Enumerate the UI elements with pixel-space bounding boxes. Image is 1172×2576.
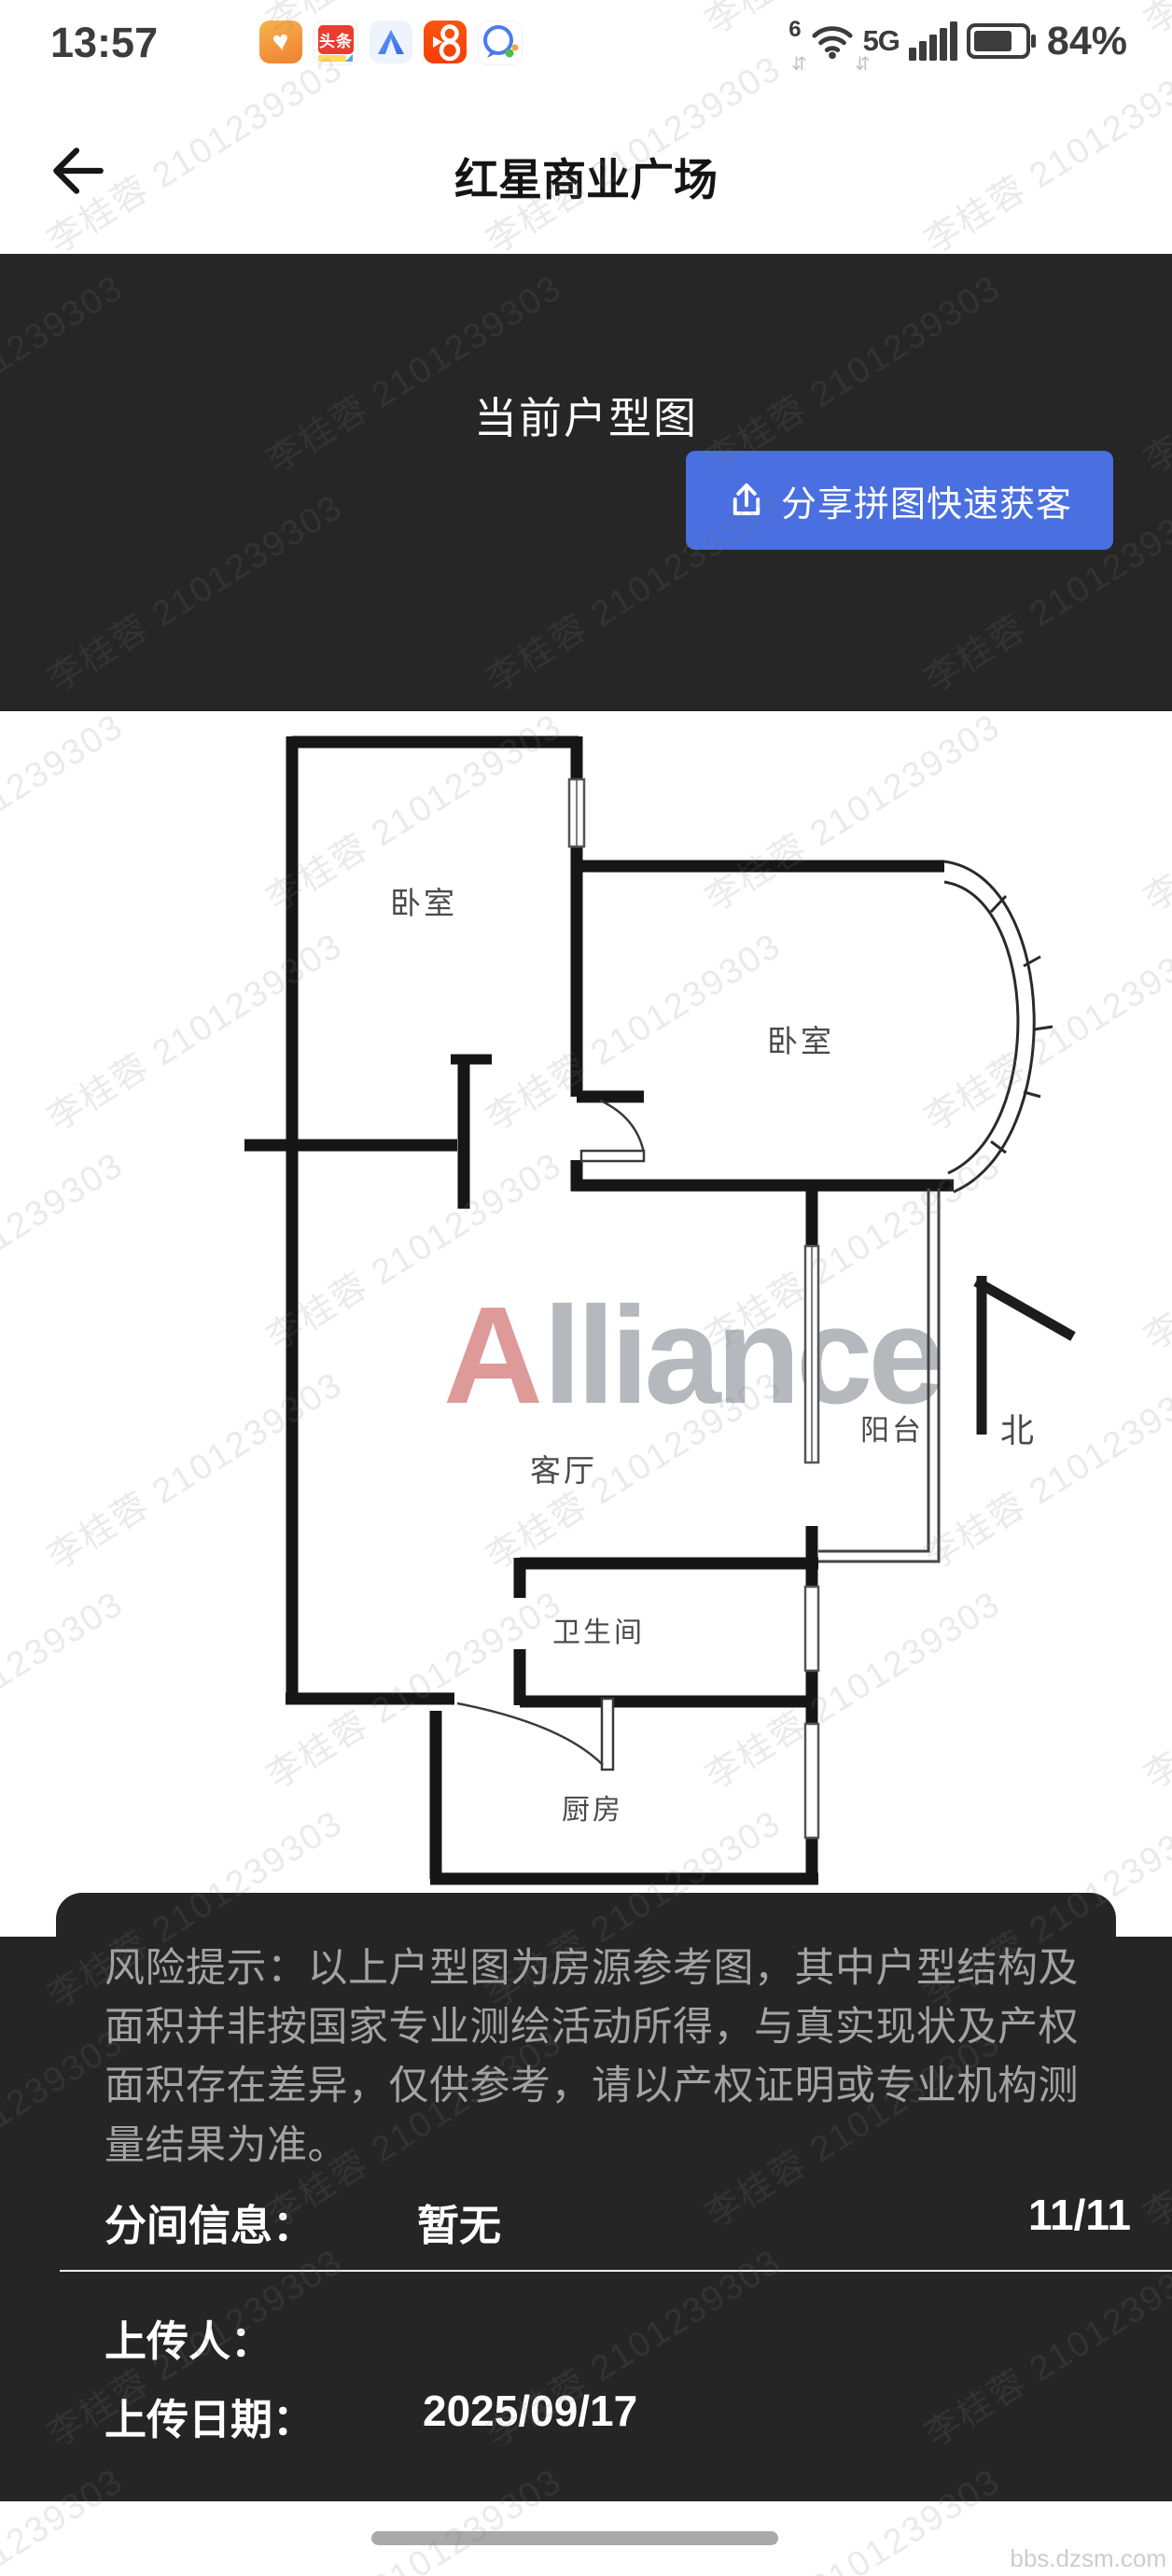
notification-icons: ♥ 头条	[259, 21, 523, 65]
battery-icon	[967, 23, 1030, 59]
battery-percent: 84%	[1047, 19, 1127, 64]
chat-app-icon	[478, 21, 523, 65]
home-indicator[interactable]	[371, 2531, 778, 2545]
floorplan-image[interactable]: A lliance	[140, 705, 1082, 1918]
nav-bar: 红星商业广场	[0, 86, 1172, 254]
room-label-living: 客厅	[530, 1453, 597, 1488]
brand-watermark-initial: A	[443, 1279, 539, 1433]
upload-date-label: 上传日期：	[105, 2386, 314, 2446]
room-label-kitchen: 厨房	[562, 1795, 623, 1826]
toutiao-app-icon: 头条	[314, 21, 358, 65]
signal-strength-icon	[909, 21, 957, 61]
kuaishou-app-icon	[424, 21, 467, 63]
room-label-balcony: 阳台	[860, 1414, 924, 1447]
north-label: 北	[1000, 1411, 1037, 1449]
room-label-bathroom: 卫生间	[552, 1617, 645, 1648]
room-label-bedroom-left: 卧室	[390, 886, 457, 920]
share-button-label: 分享拼图快速获客	[781, 475, 1072, 526]
room-label-bedroom-right: 卧室	[767, 1024, 834, 1058]
floorplan-drawing: A lliance	[140, 705, 1082, 1918]
divider-line	[60, 2270, 1172, 2272]
wifi6-label: 6	[788, 17, 801, 43]
a-app-icon	[370, 21, 412, 63]
clock: 13:57	[50, 19, 158, 67]
site-watermark: bbs.dzsm.com	[1010, 2544, 1166, 2573]
upload-date-value: 2025/09/17	[423, 2386, 637, 2436]
floorplan-header-section: 当前户型图 分享拼图快速获客	[0, 254, 1172, 711]
share-collage-button[interactable]: 分享拼图快速获客	[686, 451, 1113, 550]
doors	[457, 1100, 644, 1770]
status-bar: 13:57 ♥ 头条 6	[0, 0, 1172, 86]
brand-watermark-rest: lliance	[543, 1279, 941, 1433]
wifi-icon	[811, 21, 854, 61]
risk-notice: 风险提示：以上户型图为房源参考图，其中户型结构及面积并非按国家专业测绘活动所得，…	[105, 1939, 1084, 2176]
uploader-label: 上传人：	[105, 2307, 272, 2368]
partition-info-label: 分间信息：	[105, 2191, 314, 2252]
mobile-activity-arrows-icon: ⇵	[855, 52, 871, 76]
status-indicators: 6 5G 84%	[788, 17, 1127, 65]
heart-app-icon: ♥	[259, 21, 302, 63]
page-indicator: 11/11	[1028, 2190, 1131, 2240]
page-title: 红星商业广场	[0, 144, 1172, 208]
wifi-activity-arrows-icon: ⇵	[791, 52, 807, 76]
section-title: 当前户型图	[0, 385, 1172, 446]
share-icon	[727, 481, 766, 520]
bay-window	[944, 861, 1053, 1192]
partition-info-value: 暂无	[417, 2191, 501, 2252]
